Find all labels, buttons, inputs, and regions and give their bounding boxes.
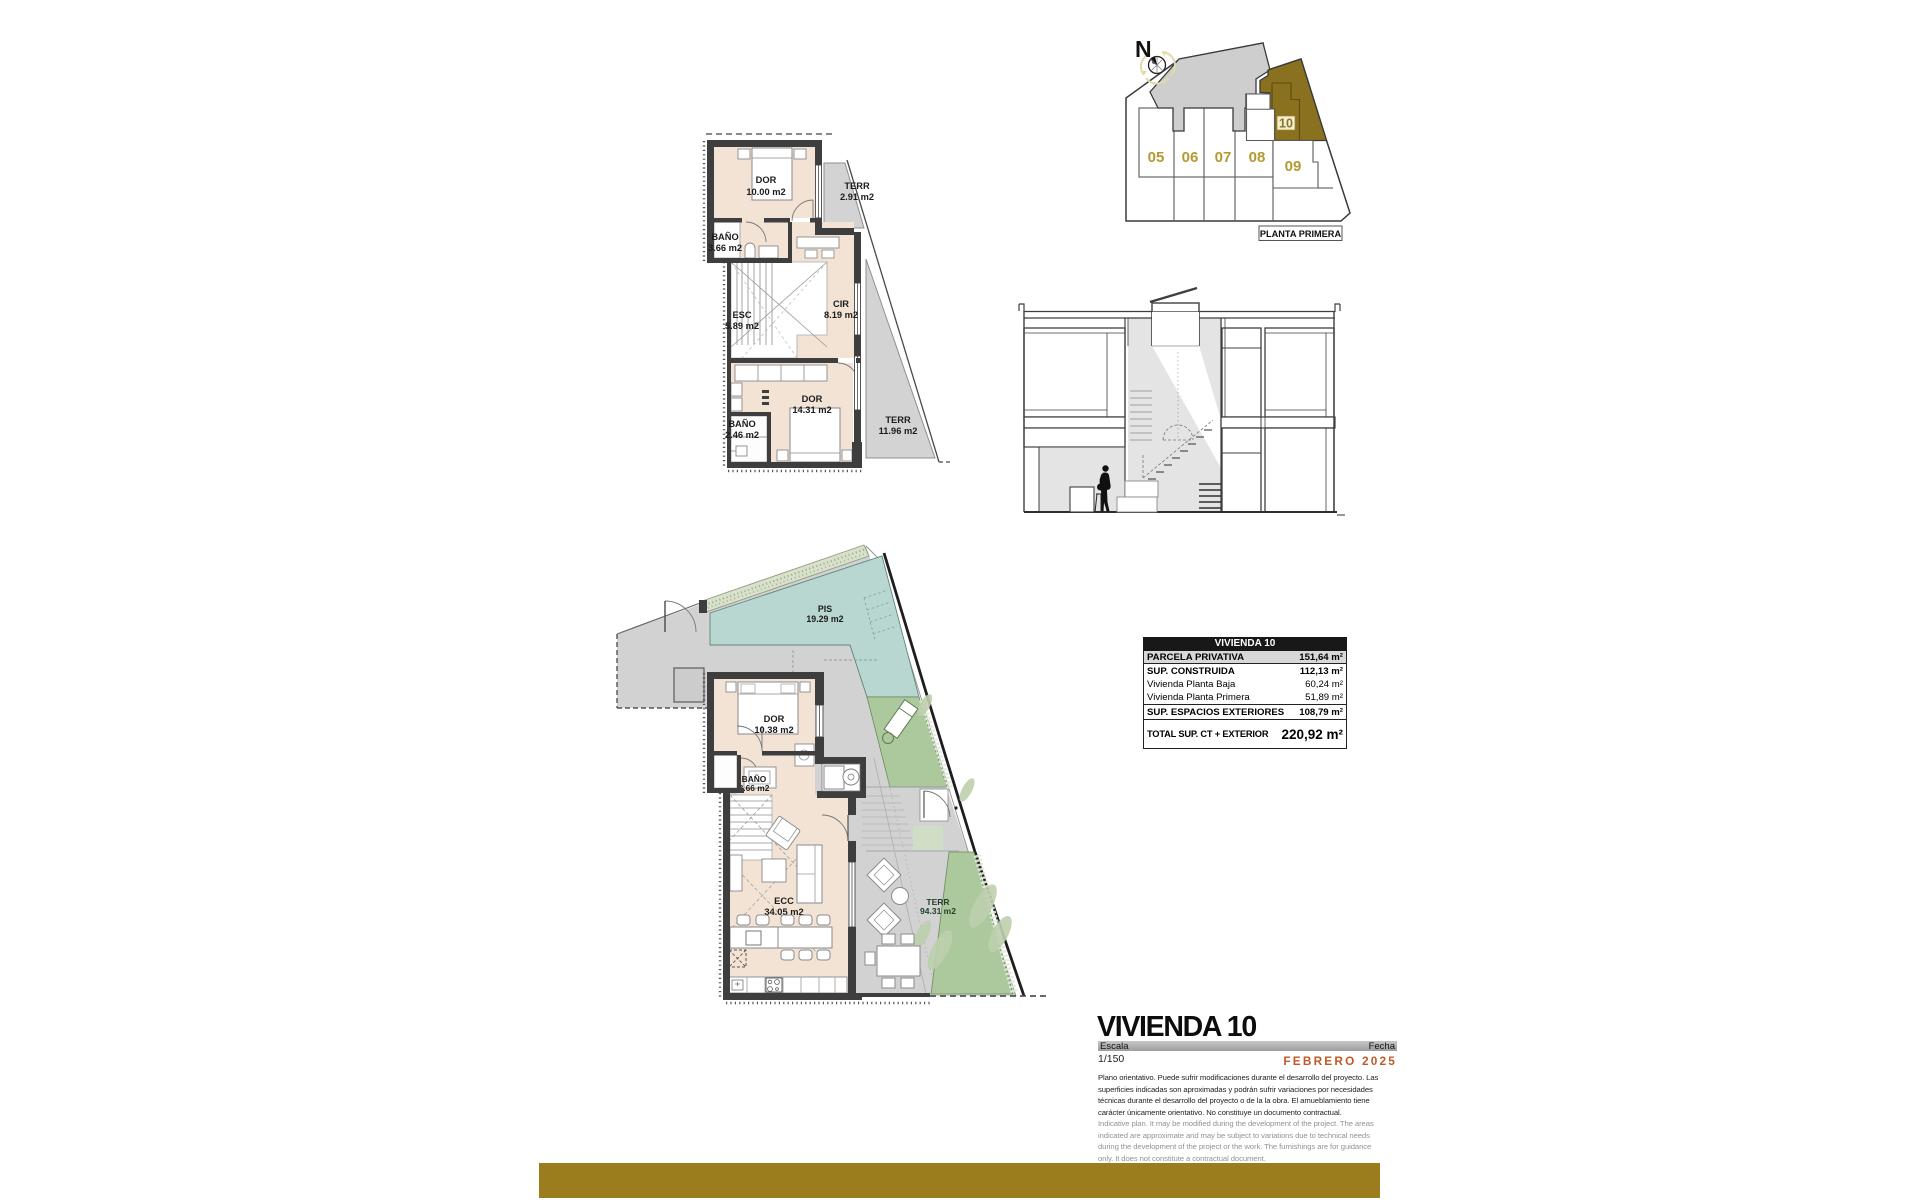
svg-text:DOR: DOR — [802, 394, 823, 404]
svg-text:PIS: PIS — [818, 604, 832, 614]
svg-text:ESC: ESC — [732, 310, 751, 320]
svg-text:06: 06 — [1182, 149, 1199, 166]
svg-text:10.38 m2: 10.38 m2 — [754, 725, 793, 735]
svg-text:TERR: TERR — [885, 415, 911, 425]
svg-text:19.29 m2: 19.29 m2 — [806, 614, 843, 624]
svg-text:08: 08 — [1249, 149, 1266, 166]
svg-text:05: 05 — [1148, 149, 1165, 166]
svg-text:09: 09 — [1285, 158, 1302, 175]
svg-text:ECC: ECC — [774, 896, 794, 906]
svg-text:8.19 m2: 8.19 m2 — [824, 310, 858, 320]
svg-text:94.31 m2: 94.31 m2 — [920, 906, 956, 916]
svg-text:DOR: DOR — [764, 714, 785, 724]
svg-text:10.00 m2: 10.00 m2 — [746, 187, 785, 197]
svg-text:TERR: TERR — [844, 181, 870, 191]
svg-text:BAÑO: BAÑO — [711, 232, 738, 242]
svg-text:14.31 m2: 14.31 m2 — [792, 405, 831, 415]
svg-text:3.66 m2: 3.66 m2 — [708, 243, 742, 253]
svg-text:DOR: DOR — [756, 175, 777, 185]
svg-text:11.96 m2: 11.96 m2 — [879, 426, 918, 436]
svg-text:07: 07 — [1215, 149, 1232, 166]
svg-text:5.89 m2: 5.89 m2 — [725, 321, 759, 331]
svg-text:BAÑO: BAÑO — [728, 419, 755, 429]
svg-text:CIR: CIR — [833, 299, 849, 309]
svg-text:PLANTA PRIMERA: PLANTA PRIMERA — [1260, 229, 1342, 239]
svg-text:10: 10 — [1279, 117, 1293, 131]
svg-text:2.91 m2: 2.91 m2 — [840, 192, 874, 202]
svg-text:2.46 m2: 2.46 m2 — [725, 430, 759, 440]
